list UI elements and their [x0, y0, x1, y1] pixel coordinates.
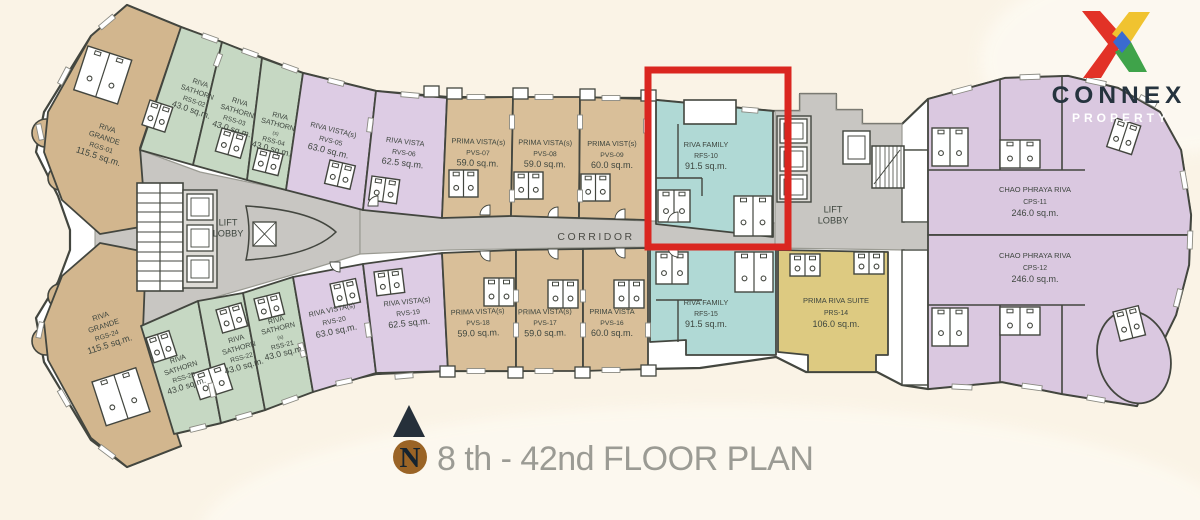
svg-text:PRS-14: PRS-14 [824, 310, 848, 317]
svg-text:246.0 sq.m.: 246.0 sq.m. [1011, 274, 1058, 284]
svg-text:60.0 sq.m.: 60.0 sq.m. [591, 328, 633, 338]
svg-text:LOBBY: LOBBY [213, 229, 244, 239]
svg-text:59.0 sq.m.: 59.0 sq.m. [524, 159, 566, 170]
svg-text:60.0 sq.m.: 60.0 sq.m. [591, 160, 633, 170]
svg-text:246.0 sq.m.: 246.0 sq.m. [1011, 208, 1058, 218]
svg-text:CHAO PHRAYA RIVA: CHAO PHRAYA RIVA [999, 185, 1071, 194]
svg-text:59.0 sq.m.: 59.0 sq.m. [524, 328, 566, 339]
svg-text:LOBBY: LOBBY [818, 216, 849, 226]
svg-text:PVS-18: PVS-18 [466, 320, 490, 328]
svg-text:CPS-12: CPS-12 [1023, 265, 1047, 272]
svg-text:LIFT: LIFT [824, 205, 843, 215]
svg-text:59.0 sq.m.: 59.0 sq.m. [457, 327, 499, 338]
svg-text:PVS-07: PVS-07 [466, 150, 490, 158]
svg-text:106.0 sq.m.: 106.0 sq.m. [812, 319, 859, 329]
svg-text:PRIMA VISTA(s): PRIMA VISTA(s) [451, 136, 505, 147]
svg-text:PVS-09: PVS-09 [600, 152, 624, 159]
svg-text:CHAO PHRAYA RIVA: CHAO PHRAYA RIVA [999, 251, 1071, 260]
svg-text:LIFT: LIFT [219, 218, 238, 228]
svg-text:RIVA FAMILY: RIVA FAMILY [684, 140, 729, 149]
svg-text:RFS-15: RFS-15 [694, 311, 718, 318]
svg-text:RIVA FAMILY: RIVA FAMILY [684, 298, 729, 307]
svg-text:91.5 sq.m.: 91.5 sq.m. [685, 161, 727, 171]
svg-text:PRIMA VISTA(s): PRIMA VISTA(s) [518, 307, 572, 317]
svg-text:CPS-11: CPS-11 [1023, 199, 1047, 206]
svg-text:PROPERTY: PROPERTY [1072, 111, 1170, 125]
svg-text:CORRIDOR: CORRIDOR [557, 231, 634, 243]
svg-text:PVS-17: PVS-17 [533, 320, 557, 327]
svg-text:59.0 sq.m.: 59.0 sq.m. [456, 157, 498, 168]
svg-text:PVS-08: PVS-08 [533, 151, 557, 158]
svg-text:PRIMA VISTA: PRIMA VISTA [589, 307, 634, 316]
svg-text:8 th - 42nd FLOOR PLAN: 8 th - 42nd FLOOR PLAN [437, 440, 813, 478]
svg-text:PRIMA VISTA(s): PRIMA VISTA(s) [451, 306, 505, 317]
svg-text:PRIMA RIVA SUITE: PRIMA RIVA SUITE [803, 296, 869, 305]
svg-text:91.5 sq.m.: 91.5 sq.m. [685, 319, 727, 329]
svg-text:PRIMA VISTA(s): PRIMA VISTA(s) [518, 138, 572, 148]
svg-text:N: N [400, 442, 421, 474]
svg-text:RFS-10: RFS-10 [694, 153, 718, 160]
svg-text:CONNEX: CONNEX [1052, 82, 1187, 109]
svg-text:PRIMA VIST(s): PRIMA VIST(s) [587, 139, 636, 148]
svg-text:PVS-16: PVS-16 [600, 320, 624, 327]
